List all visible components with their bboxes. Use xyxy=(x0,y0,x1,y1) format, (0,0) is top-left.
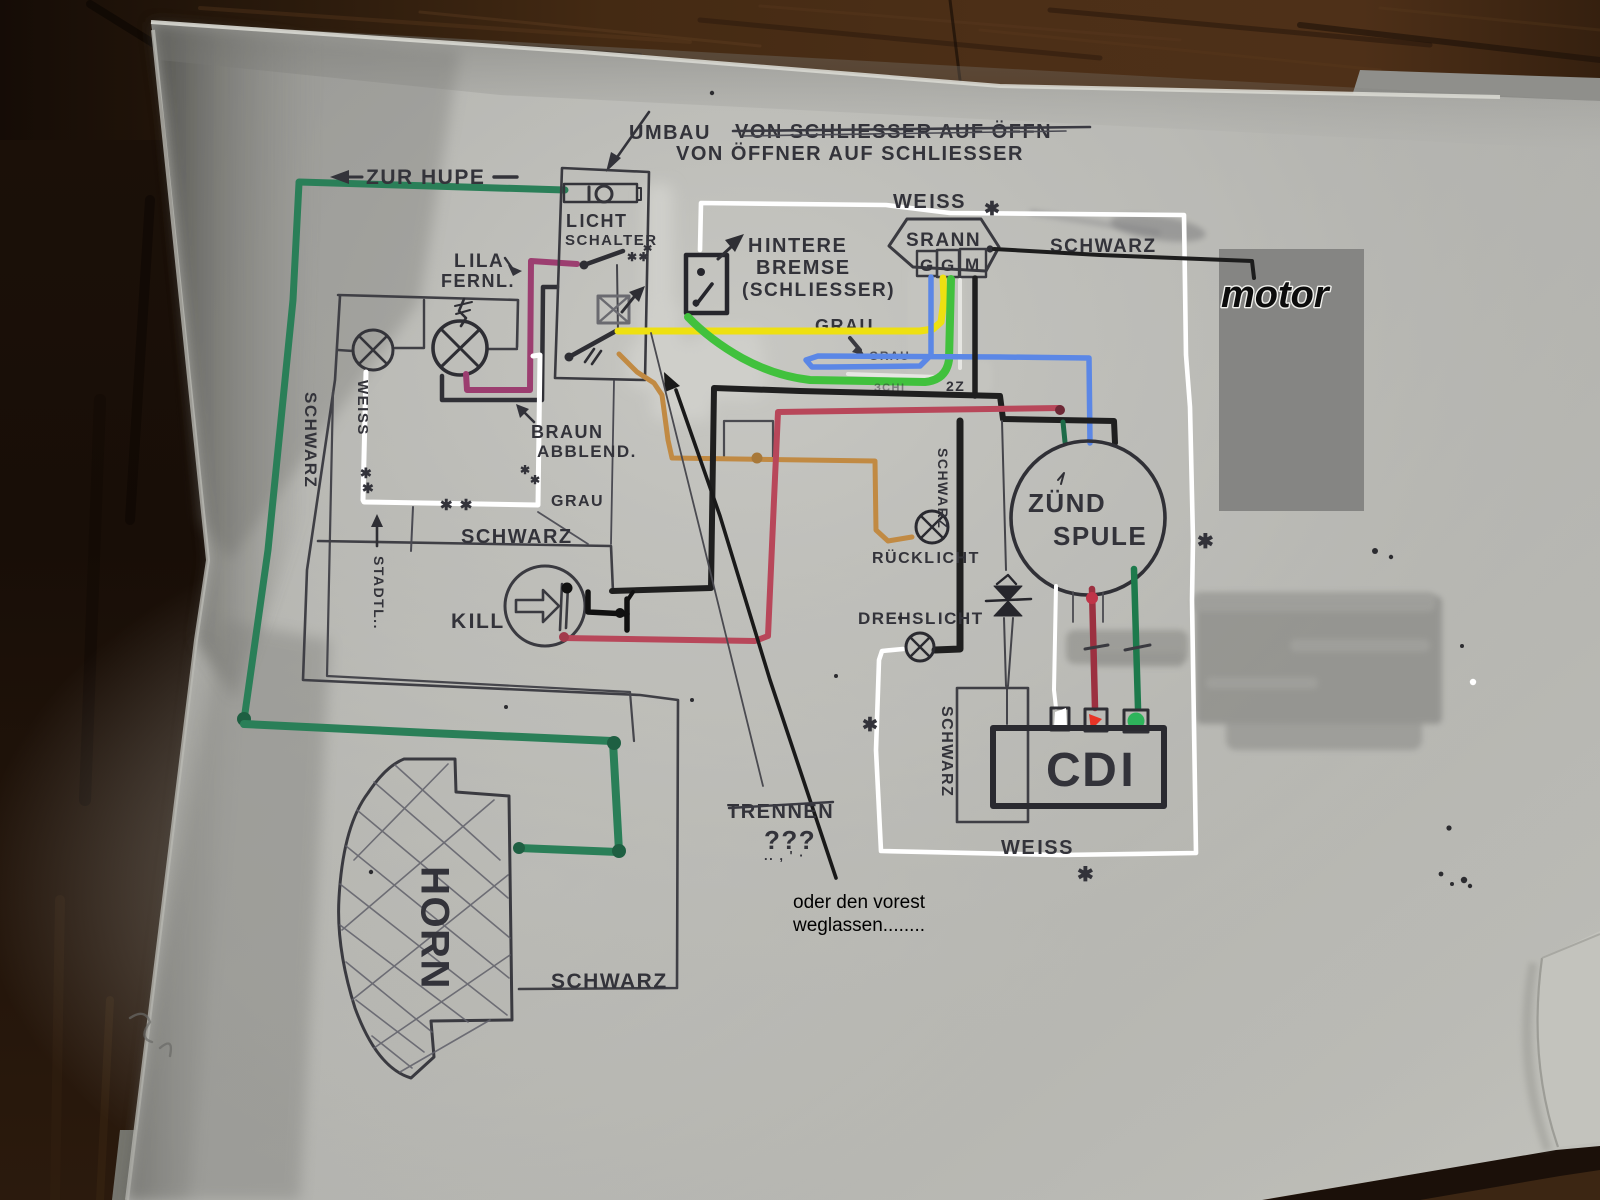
svg-text:.. , ' ·: .. , ' · xyxy=(764,848,805,863)
svg-text:CDI: CDI xyxy=(1046,744,1135,797)
svg-text:HORN: HORN xyxy=(412,866,456,990)
svg-text:oder den vorest: oder den vorest xyxy=(793,892,926,913)
svg-text:✱: ✱ xyxy=(1077,864,1095,886)
svg-text:weglassen........: weglassen........ xyxy=(792,915,925,936)
svg-text:SCHWARZ: SCHWARZ xyxy=(938,706,955,797)
svg-text:SCHWARZ: SCHWARZ xyxy=(551,970,668,993)
svg-text:WEISS: WEISS xyxy=(1001,837,1074,859)
